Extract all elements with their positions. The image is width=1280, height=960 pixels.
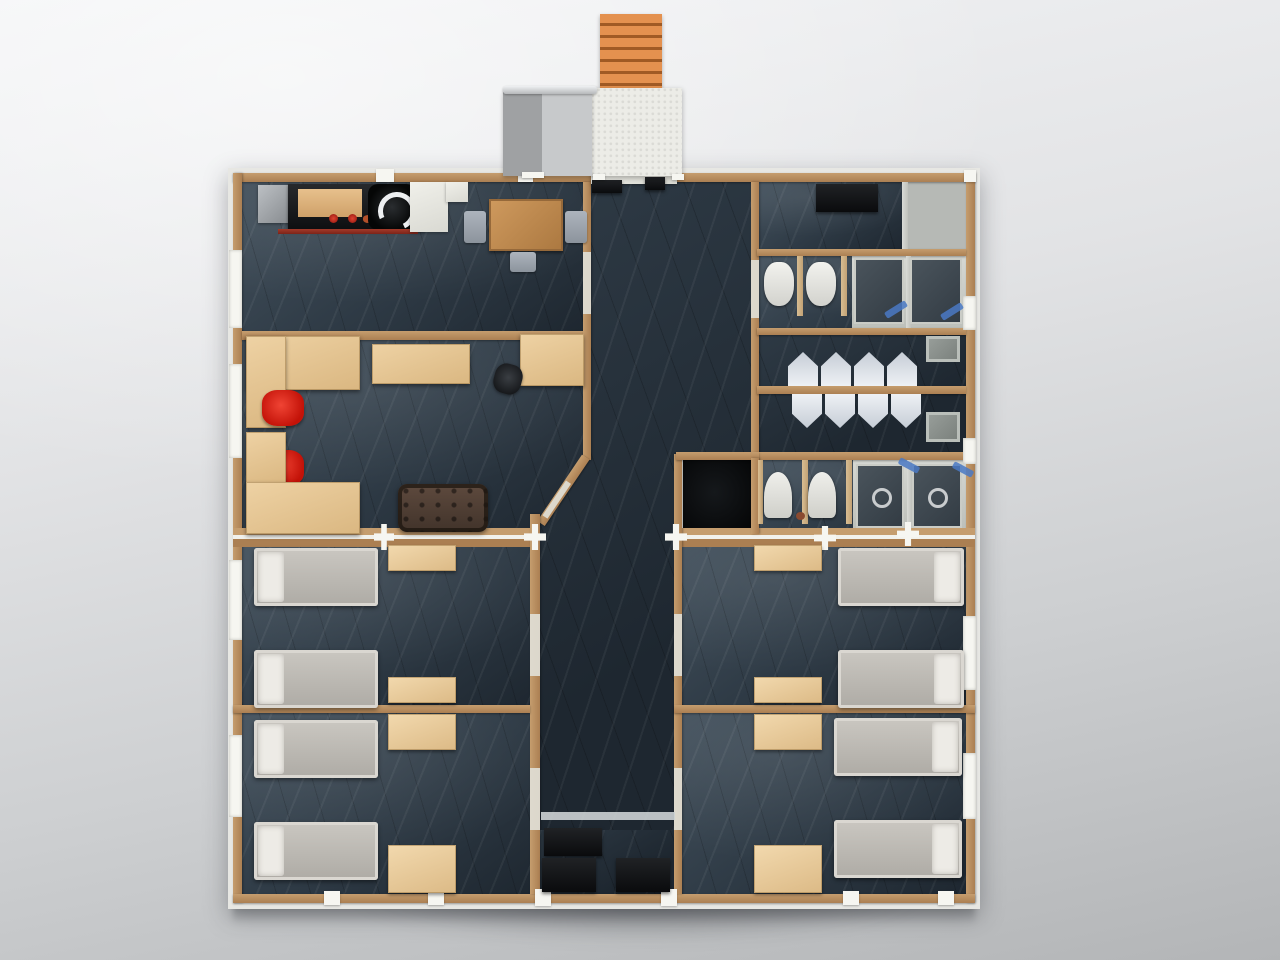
door-bedroom-R2 <box>674 768 682 830</box>
wall-washroom-centre <box>757 386 966 394</box>
shower-head-1 <box>872 488 892 508</box>
wall-corridor-left-lower <box>530 514 540 894</box>
dining-chair-1 <box>464 211 486 243</box>
stall-partition-2 <box>841 256 847 316</box>
stove-knob-2 <box>348 214 357 223</box>
window-left-4 <box>229 735 242 817</box>
wardrobe-L1-top <box>388 545 456 571</box>
stove-knob-1 <box>329 214 338 223</box>
pillow-L2-b <box>258 826 284 876</box>
wardrobe-R2-top <box>754 714 822 750</box>
joint-tab-bottom-1 <box>324 891 340 905</box>
wardrobe-R1-top <box>754 545 822 571</box>
pillow-R2-b <box>932 824 958 874</box>
pillow-R2-a <box>932 722 958 772</box>
door-bedroom-L2 <box>530 768 540 830</box>
utility-equipment <box>816 184 878 212</box>
stall-partition-1 <box>797 256 803 316</box>
office-desk-4 <box>246 482 360 534</box>
office-chair-red-1 <box>262 390 304 426</box>
floor-plan-render <box>0 0 1280 960</box>
pillow-L1-a <box>258 552 284 602</box>
window-right-3 <box>963 616 976 690</box>
stall-partition-3 <box>758 460 763 524</box>
exterior-stairs <box>600 14 662 88</box>
landing-foot-1 <box>522 172 544 178</box>
window-right-1 <box>963 296 976 330</box>
cutting-board <box>298 189 362 217</box>
fridge <box>258 185 290 223</box>
wash-cabinet-2 <box>926 412 960 442</box>
entry-mat-2 <box>645 177 665 190</box>
wall-utility-closet <box>902 182 908 249</box>
entry-landing <box>591 88 682 176</box>
window-right-2 <box>963 438 976 464</box>
wall-closet-top <box>676 452 759 460</box>
store-shelf <box>544 828 602 856</box>
door-bedroom-L1 <box>530 614 540 676</box>
wardrobe-R1-bottom <box>754 677 822 703</box>
joint-tab-bottom-6 <box>938 891 954 905</box>
floor-drain <box>796 512 805 520</box>
door-kitchen <box>583 252 591 314</box>
shower-1 <box>854 258 904 324</box>
pillow-L2-a <box>258 724 284 774</box>
toilet-4 <box>808 472 836 518</box>
store-glass-partition <box>541 812 675 820</box>
joint-tab-top-1 <box>376 169 394 182</box>
stall-partition-5 <box>846 460 852 524</box>
wall-washroom-toilets2 <box>757 452 966 460</box>
entry-mat-1 <box>592 180 622 193</box>
dining-chair-3 <box>510 252 536 272</box>
toilet-2 <box>806 262 836 306</box>
wall-toilets-washroom <box>757 328 966 335</box>
window-left-3 <box>229 560 242 640</box>
landing-foot-2 <box>593 174 605 180</box>
wardrobe-L2-top <box>388 714 456 750</box>
toilet-3 <box>764 472 792 518</box>
dining-chair-2 <box>565 211 587 243</box>
wardrobe-L2-bottom <box>388 845 456 893</box>
landing-foot-3 <box>672 174 684 180</box>
store-box-2 <box>616 858 670 892</box>
sofa <box>398 484 488 532</box>
ramp-handrail <box>503 86 597 94</box>
toilet-1 <box>764 262 794 306</box>
joint-tab-top-3 <box>964 170 976 182</box>
store-box-1 <box>542 858 596 892</box>
pillow-R1-b <box>934 654 960 704</box>
joint-tab-bottom-2 <box>428 891 444 905</box>
door-bedroom-R1 <box>674 614 682 676</box>
white-counter <box>410 182 448 232</box>
dining-table <box>489 199 563 251</box>
window-left-2 <box>229 364 242 458</box>
wall-corridor-right <box>751 182 759 458</box>
office-desk-4-return <box>246 432 286 484</box>
wardrobe-R2-bottom <box>754 845 822 893</box>
white-counter-2 <box>446 182 468 202</box>
utility-closet-floor <box>904 182 966 253</box>
office-desk-2 <box>372 344 470 384</box>
window-right-4 <box>963 753 976 819</box>
entry-ramp <box>503 92 592 176</box>
wardrobe-L1-bottom <box>388 677 456 703</box>
window-left-1 <box>229 250 242 328</box>
dark-closet-floor <box>683 460 753 532</box>
counter-kick-strip <box>278 229 418 234</box>
joint-tab-bottom-5 <box>843 891 859 905</box>
door-bathrooms <box>751 260 759 318</box>
pillow-L1-b <box>258 654 284 704</box>
pillow-R1-a <box>934 552 960 602</box>
wash-cabinet-1 <box>926 336 960 362</box>
office-desk-3 <box>520 334 584 386</box>
shower-head-2 <box>928 488 948 508</box>
wall-utility-toilets <box>757 249 966 256</box>
wall-bottom <box>233 894 975 903</box>
